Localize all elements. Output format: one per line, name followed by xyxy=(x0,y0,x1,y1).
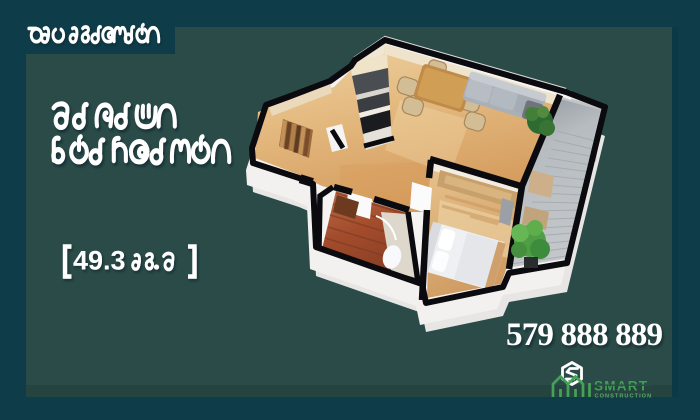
svg-text:49.3: 49.3 xyxy=(73,246,126,276)
svg-text:579 888 889: 579 888 889 xyxy=(506,317,663,353)
svg-text:SMART: SMART xyxy=(594,379,648,394)
svg-text:CONSTRUCTION: CONSTRUCTION xyxy=(595,394,653,400)
